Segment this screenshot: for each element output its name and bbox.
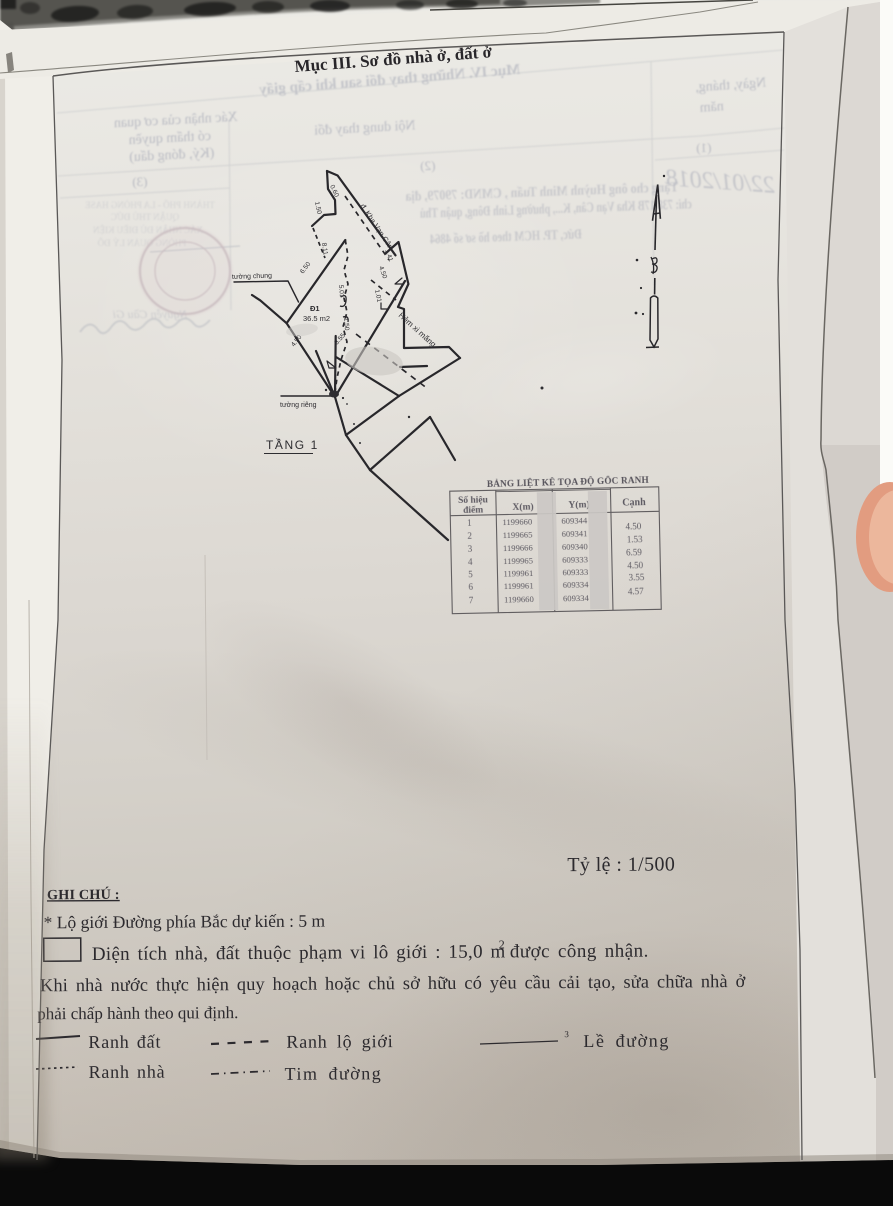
svg-text:BẢNG LIỆT KÊ TỌA ĐỘ GỐC RANH: BẢNG LIỆT KÊ TỌA ĐỘ GỐC RANH <box>487 475 649 489</box>
svg-text:3: 3 <box>468 544 473 554</box>
svg-text:4.50: 4.50 <box>377 265 388 280</box>
svg-text:Ranh đất: Ranh đất <box>88 1032 161 1052</box>
svg-text:điểm: điểm <box>463 504 483 515</box>
svg-text:609341: 609341 <box>562 528 588 539</box>
svg-text:5.01: 5.01 <box>337 285 345 299</box>
svg-text:1199666: 1199666 <box>503 542 534 553</box>
svg-text:Lề đường: Lề đường <box>583 1030 670 1051</box>
svg-text:609340: 609340 <box>562 541 588 552</box>
svg-text:3: 3 <box>564 1029 569 1039</box>
svg-text:1199660: 1199660 <box>504 594 534 605</box>
svg-text:phải chấp hành theo qui định.: phải chấp hành theo qui định. <box>37 1003 238 1023</box>
svg-text:3.55: 3.55 <box>628 572 644 582</box>
svg-text:6.59: 6.59 <box>626 547 642 557</box>
svg-text:X(m): X(m) <box>512 501 533 512</box>
svg-text:tường chung: tường chung <box>232 273 272 281</box>
svg-text:1: 1 <box>467 518 472 528</box>
svg-text:609333: 609333 <box>562 554 588 565</box>
svg-text:GHI CHÚ :: GHI CHÚ : <box>47 886 120 903</box>
svg-text:Cạnh: Cạnh <box>622 497 646 508</box>
svg-text:6.50: 6.50 <box>299 261 312 276</box>
svg-text:5: 5 <box>468 569 473 579</box>
svg-text:2: 2 <box>499 937 505 951</box>
svg-text:4: 4 <box>468 557 473 567</box>
svg-text:Ranh lộ giới: Ranh lộ giới <box>286 1031 393 1052</box>
svg-text:7: 7 <box>469 595 474 605</box>
svg-text:1.01: 1.01 <box>373 289 383 303</box>
svg-text:Y(m): Y(m) <box>568 499 589 510</box>
svg-text:4.50: 4.50 <box>627 560 643 570</box>
svg-text:609344: 609344 <box>561 515 588 526</box>
svg-text:Khi nhà nước thực hiện quy hoạ: Khi nhà nước thực hiện quy hoạch hoặc ch… <box>40 971 746 995</box>
svg-text:36.5 m2: 36.5 m2 <box>303 314 330 323</box>
svg-text:1199665: 1199665 <box>503 529 533 540</box>
svg-text:được công nhận.: được công nhận. <box>510 941 649 963</box>
svg-text:Ranh nhà: Ranh nhà <box>88 1062 165 1082</box>
svg-text:1199961: 1199961 <box>503 568 533 579</box>
svg-text:tường riêng: tường riêng <box>280 402 317 409</box>
svg-text:1.50: 1.50 <box>342 318 350 332</box>
svg-text:1199660: 1199660 <box>502 516 532 527</box>
svg-text:* Lộ giới Đường phía Bắc dự ki: * Lộ giới Đường phía Bắc dự kiến : 5 m <box>44 911 326 933</box>
svg-text:1199961: 1199961 <box>504 580 534 591</box>
svg-text:8.11: 8.11 <box>320 242 329 255</box>
svg-text:609333: 609333 <box>562 567 588 578</box>
svg-text:Số hiệu: Số hiệu <box>458 494 489 506</box>
svg-text:Tim đường: Tim đường <box>284 1063 382 1084</box>
svg-text:609334: 609334 <box>563 593 590 604</box>
svg-text:4.57: 4.57 <box>628 586 644 596</box>
svg-text:1.50: 1.50 <box>313 201 323 215</box>
svg-text:Diện tích nhà, đất thuộc phạm: Diện tích nhà, đất thuộc phạm vi lô giới… <box>92 941 506 965</box>
svg-text:1199965: 1199965 <box>503 555 533 566</box>
svg-text:Tỷ lệ : 1/500: Tỷ lệ : 1/500 <box>567 853 675 876</box>
svg-text:Hẻm xi măng: Hẻm xi măng <box>397 311 438 349</box>
svg-text:2: 2 <box>467 531 472 541</box>
svg-text:4.50: 4.50 <box>625 521 641 531</box>
svg-text:1.53: 1.53 <box>627 534 643 544</box>
svg-text:6: 6 <box>468 582 473 592</box>
svg-text:Đ1: Đ1 <box>310 304 320 313</box>
svg-text:609334: 609334 <box>563 579 590 590</box>
svg-text:TẦNG 1: TẦNG 1 <box>266 437 319 452</box>
